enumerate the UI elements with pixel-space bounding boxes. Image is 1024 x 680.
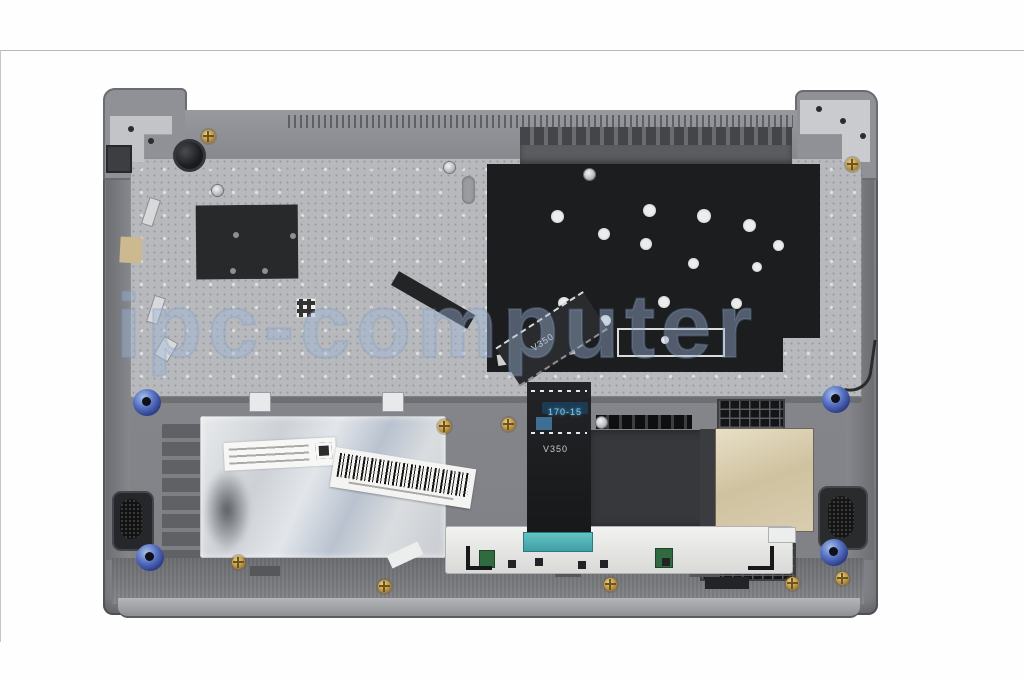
standoff-dot: [688, 258, 699, 269]
touchpad-clip: [535, 558, 543, 566]
flex-cable-blue-tag: 170-15: [542, 402, 588, 414]
brass-screw: [846, 158, 859, 171]
product-photo-stage: V350 170-15 V350 ipc-: [0, 0, 1024, 680]
plate-dark-blotch: [203, 468, 251, 552]
frame-top-line: [0, 50, 1024, 51]
brass-screw: [502, 418, 515, 431]
touchpad-clip: [600, 560, 608, 568]
connector-row: [596, 415, 692, 429]
cable-fold-line: [531, 390, 587, 392]
standoff-dot: [643, 204, 656, 217]
front-band-slot: [250, 566, 280, 576]
standoff-dot: [661, 336, 669, 344]
hinge-vent-bar: [520, 127, 792, 147]
info-label-sticker: [223, 437, 336, 471]
standoff-dot: [658, 296, 670, 308]
keyboard-mylar-black: [487, 164, 820, 316]
brass-screw: [202, 130, 215, 143]
dark-panel: [700, 429, 716, 529]
hinge-vent-bar-body: [520, 145, 792, 165]
label-qr-code: [315, 442, 332, 459]
touchpad-retainer-right: [748, 546, 774, 570]
qr-code-mini: [296, 298, 316, 318]
touchpad-bracket: [445, 526, 793, 574]
bracket-screw-hole: [128, 126, 134, 132]
brass-screw: [438, 420, 451, 433]
sticker-hole: [290, 233, 296, 239]
touchpad-clip: [578, 561, 586, 569]
gold-foil-plate: [715, 428, 814, 532]
bracket-screw-hole: [840, 118, 846, 124]
plate-tab: [382, 392, 404, 412]
brass-screw: [378, 580, 391, 593]
brass-screw: [836, 572, 849, 585]
hinge-socket-left: [106, 145, 132, 173]
standoff-dot: [752, 262, 762, 272]
sticker-hole: [233, 232, 239, 238]
standoff-dot: [743, 219, 756, 232]
flex-cable-model-label-bottom: V350: [543, 444, 568, 454]
standoff-dot: [773, 240, 784, 251]
silver-screw: [444, 162, 455, 173]
power-button-dome: [173, 139, 206, 172]
standoff-dot: [551, 210, 564, 223]
silver-screw: [212, 185, 223, 196]
flex-cable-model-label: V350: [529, 331, 555, 353]
silver-screw: [584, 169, 595, 180]
tan-sticker: [119, 236, 142, 263]
speaker-left-grille: [120, 499, 142, 539]
touchpad-clip: [508, 560, 516, 568]
plate-oval-hole: [462, 176, 475, 204]
bracket-screw-hole: [860, 133, 866, 139]
standoff-dot: [697, 209, 711, 223]
sticker-hole: [230, 268, 236, 274]
standoff-dot: [598, 228, 610, 240]
blue-grommet: [820, 539, 848, 566]
touchpad-bracket-wing: [768, 527, 796, 543]
speaker-right-grille: [828, 496, 854, 538]
touchpad-retainer-left: [466, 546, 492, 570]
black-foam-pad: [588, 430, 714, 528]
brass-screw: [604, 578, 617, 591]
sticker-hole: [262, 268, 268, 274]
standoff-dot: [731, 298, 742, 309]
bracket-screw-hole: [816, 106, 822, 112]
black-mylar-sticker-left: [196, 205, 299, 280]
touchpad-clip: [662, 558, 670, 566]
brass-screw: [786, 577, 799, 590]
brass-screw: [232, 556, 245, 569]
frame-left-line: [0, 50, 1, 642]
keyboard-mylar-black-tab: [783, 316, 820, 338]
plate-tab: [249, 392, 271, 412]
rib-column: [162, 424, 202, 566]
silver-screw: [596, 417, 607, 428]
standoff-dot: [640, 238, 652, 250]
flex-cable-tag-text: 170-15: [548, 407, 582, 417]
cable-fold-line: [531, 432, 587, 434]
blue-connector-chip: [536, 417, 552, 430]
small-black-block: [705, 577, 749, 589]
front-lip: [118, 598, 860, 618]
blue-grommet: [133, 389, 161, 416]
mylar-cutout-rect: [617, 328, 725, 357]
touchpad-connector-teal: [523, 532, 593, 552]
bracket-screw-hole: [148, 138, 154, 144]
blue-grommet: [136, 544, 164, 571]
label-text-lines: [229, 444, 310, 464]
blue-grommet: [822, 386, 850, 413]
